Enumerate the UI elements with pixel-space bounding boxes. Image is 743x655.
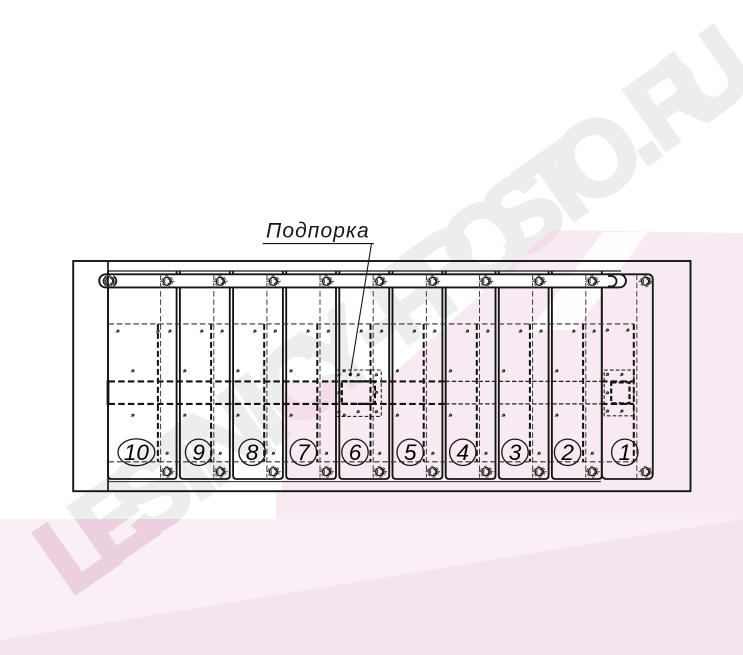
svg-text:6: 6	[349, 440, 362, 465]
svg-text:5: 5	[404, 440, 417, 465]
svg-text:3: 3	[509, 440, 522, 465]
svg-text:2: 2	[560, 440, 574, 465]
svg-text:8: 8	[246, 440, 259, 465]
svg-text:10: 10	[124, 440, 150, 465]
svg-text:7: 7	[297, 440, 311, 465]
svg-text:1: 1	[619, 440, 632, 465]
svg-text:9: 9	[192, 440, 205, 465]
svg-text:4: 4	[457, 440, 470, 465]
svg-text:Подпорка: Подпорка	[266, 220, 370, 243]
